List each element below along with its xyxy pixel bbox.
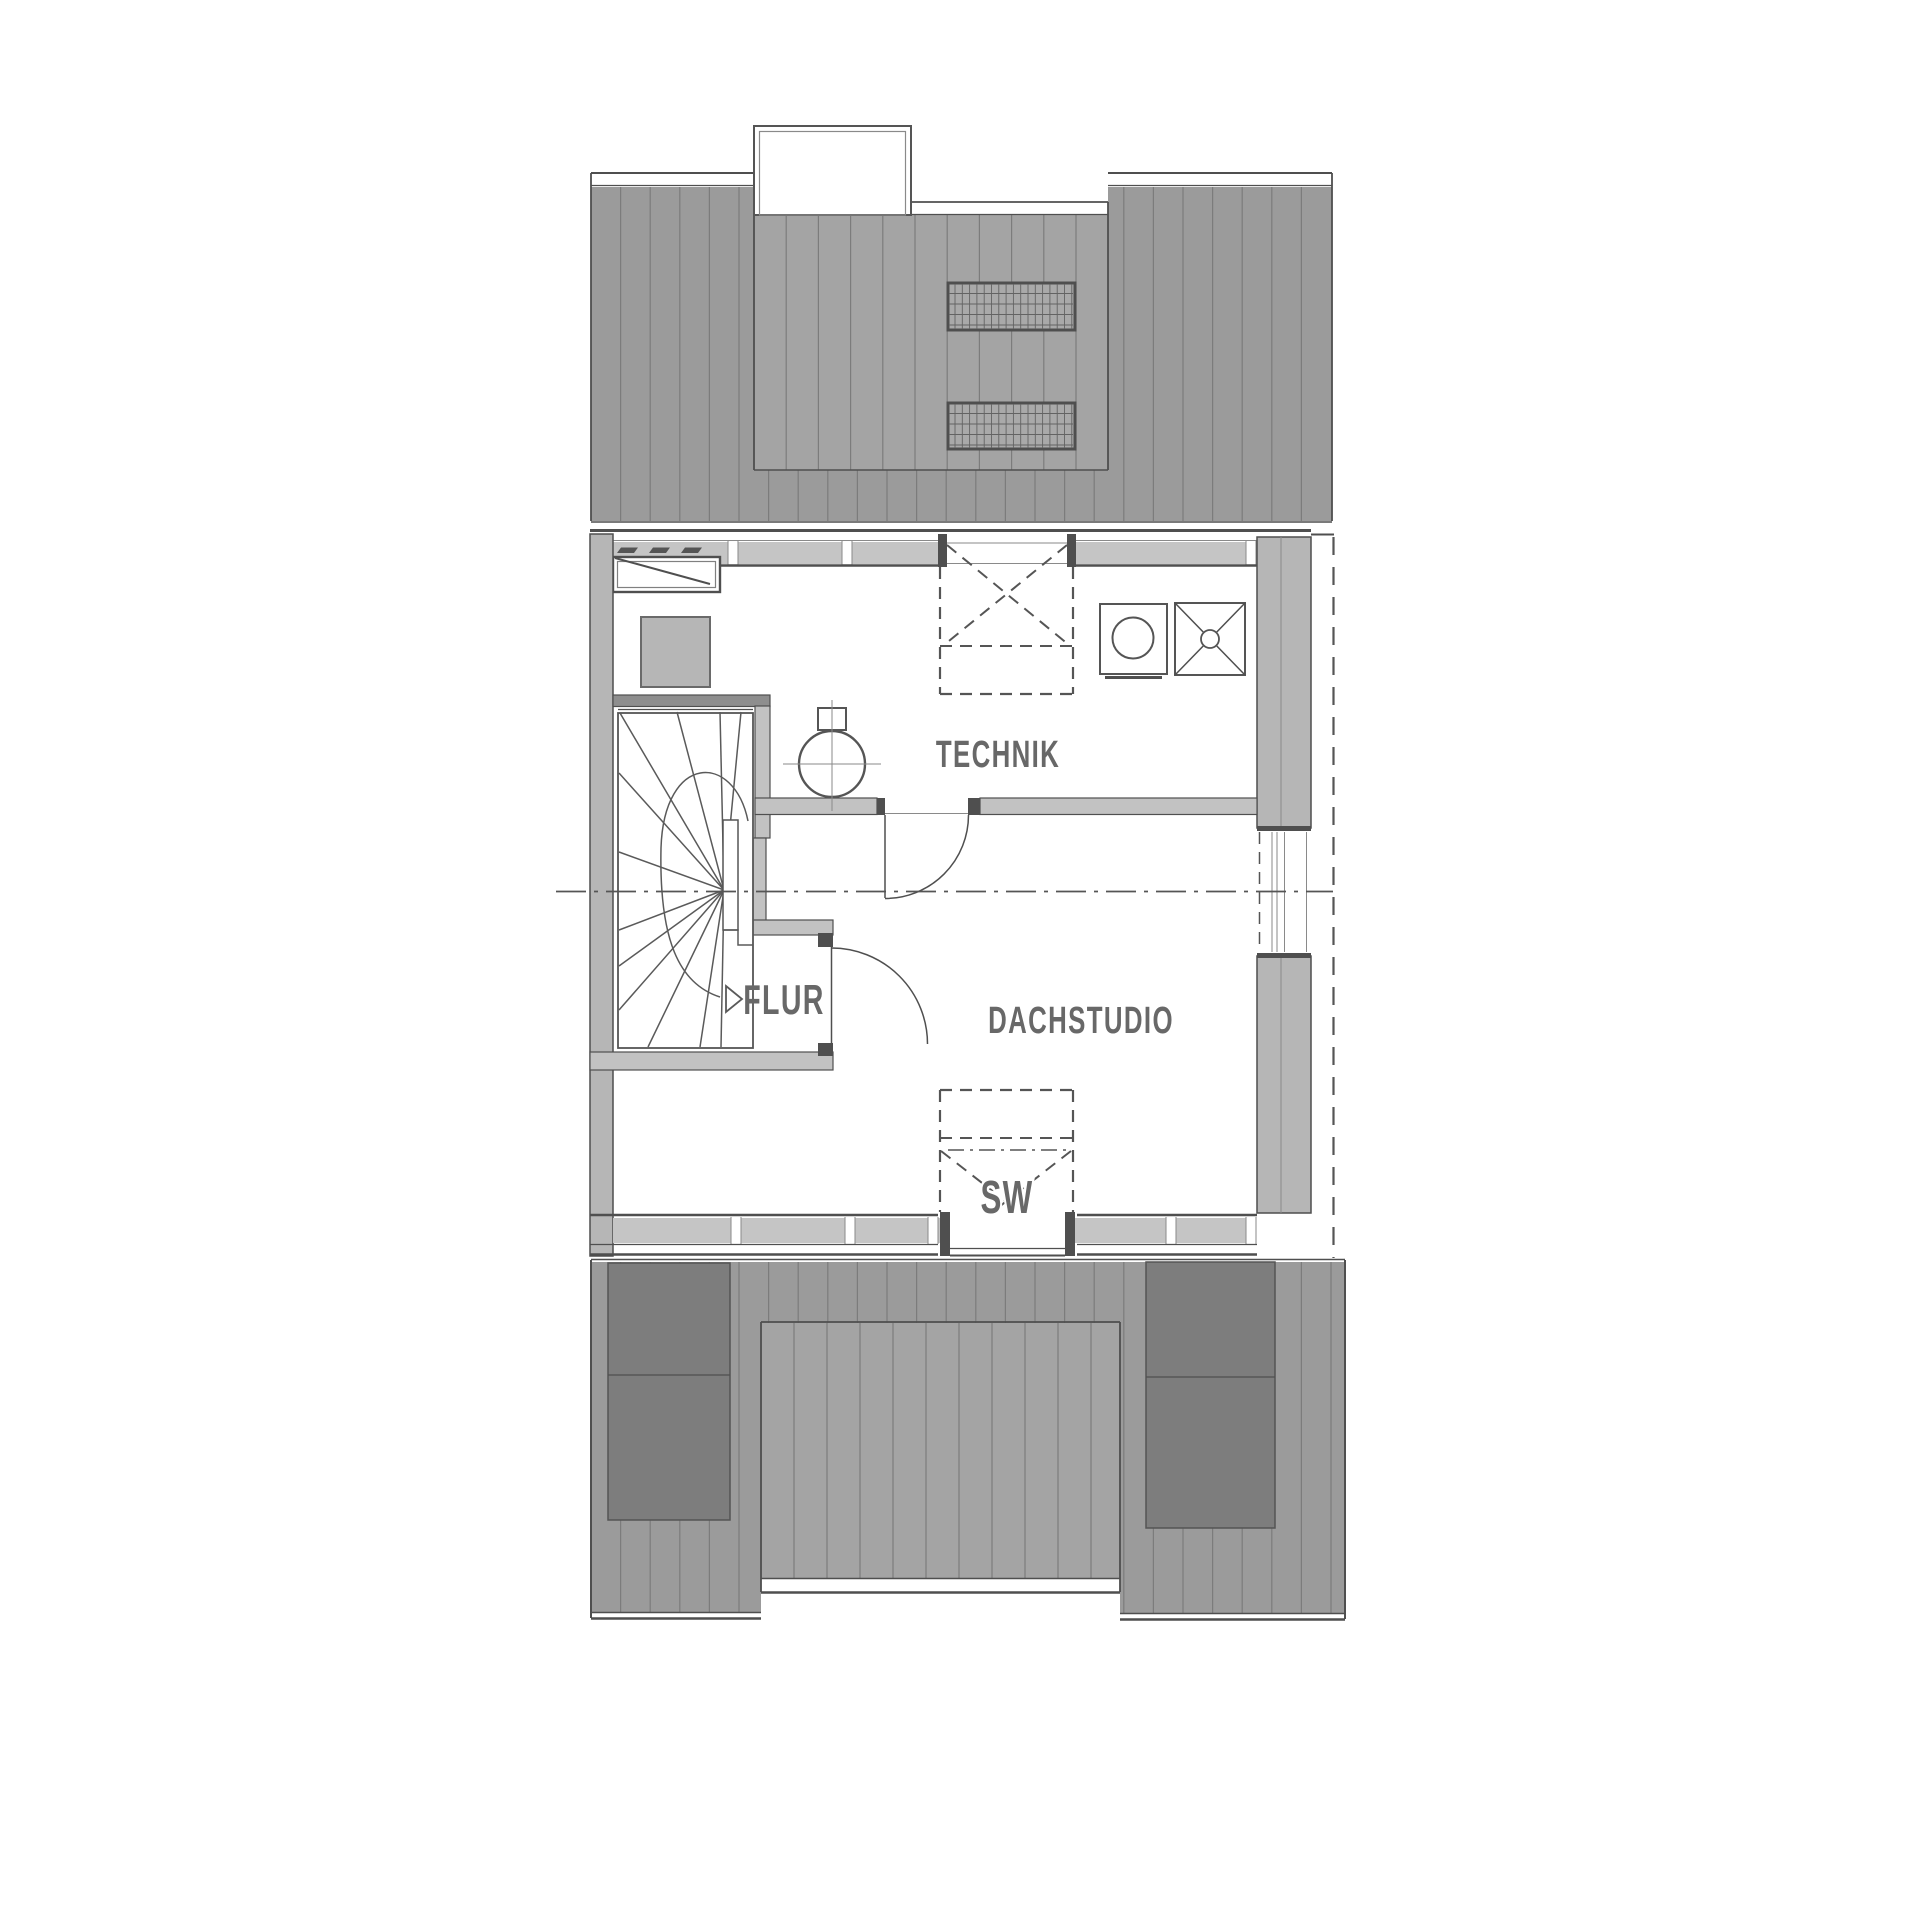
band-opening <box>947 535 1067 566</box>
skylight-frame <box>948 283 1075 330</box>
technik-south-wall-left <box>755 798 877 815</box>
door-jamb <box>877 798 885 815</box>
flur-south-wall <box>590 1052 833 1070</box>
opening-jamb <box>940 1212 950 1256</box>
door-jamb <box>968 798 980 815</box>
room-label-flur: FLUR <box>743 975 825 1023</box>
stair-spine <box>723 820 738 930</box>
technik-south-wall-right <box>980 798 1257 815</box>
door-swing-arc <box>885 815 969 899</box>
spiral-staircase <box>618 710 753 1049</box>
top-roof <box>590 126 1334 541</box>
skylight-projection-top <box>940 545 1073 694</box>
opening-jamb <box>1065 1212 1075 1256</box>
right-outer-wall <box>1257 537 1311 1213</box>
roof-panel-right <box>1146 1262 1275 1528</box>
opening-jamb <box>1067 534 1076 567</box>
floor-plan-svg: TECHNIK FLUR DACHSTUDIO SW <box>0 0 1920 1920</box>
window-band-bottom <box>590 1212 1257 1256</box>
room-label-dachstudio: DACHSTUDIO <box>988 999 1174 1041</box>
water-heater <box>783 700 881 811</box>
opening-cap <box>1257 826 1311 831</box>
stair-side-wall-lower <box>752 838 766 922</box>
vent-dashes <box>617 548 702 554</box>
bottom-dormer-surface <box>762 1323 1119 1578</box>
door-technik-dachstudio <box>885 814 969 899</box>
shower-drain <box>1175 603 1245 675</box>
roof-hatch-marker <box>613 557 720 592</box>
drain-icon <box>1201 630 1219 648</box>
skylight-frame <box>948 403 1075 449</box>
flur-north-wall <box>752 920 833 935</box>
opening-cap <box>1257 953 1311 958</box>
right-wall-upper <box>1257 537 1311 828</box>
roof-panel-left <box>608 1263 730 1520</box>
roof-skylight-2 <box>948 403 1075 449</box>
door-flur-dachstudio <box>832 947 928 1044</box>
bottom-roof <box>591 1260 1345 1620</box>
chimney <box>754 126 911 215</box>
washing-machine <box>1100 604 1167 678</box>
floor-plan-page: TECHNIK FLUR DACHSTUDIO SW <box>0 0 1920 1920</box>
right-wall-lower <box>1257 956 1311 1213</box>
washer-body <box>1100 604 1167 674</box>
door-jamb <box>818 933 833 947</box>
door-jamb <box>818 1043 833 1056</box>
window-mullion <box>842 541 852 565</box>
roof-skylight-1 <box>948 283 1075 330</box>
chimney-outline <box>754 126 911 215</box>
duct-shaft-square <box>641 617 710 687</box>
bottom-dormer <box>761 1322 1120 1593</box>
window-band-top <box>590 534 1257 592</box>
left-outer-wall <box>590 534 613 1256</box>
window-mullion <box>728 541 738 565</box>
stair-side-wall <box>755 706 770 838</box>
opening-jamb <box>938 534 947 567</box>
window-mullion <box>1246 541 1257 565</box>
door-swing-arc <box>832 948 928 1044</box>
room-label-technik: TECHNIK <box>936 733 1060 775</box>
stair-top-wall <box>613 695 770 707</box>
room-label-sw: SW <box>980 1172 1033 1223</box>
